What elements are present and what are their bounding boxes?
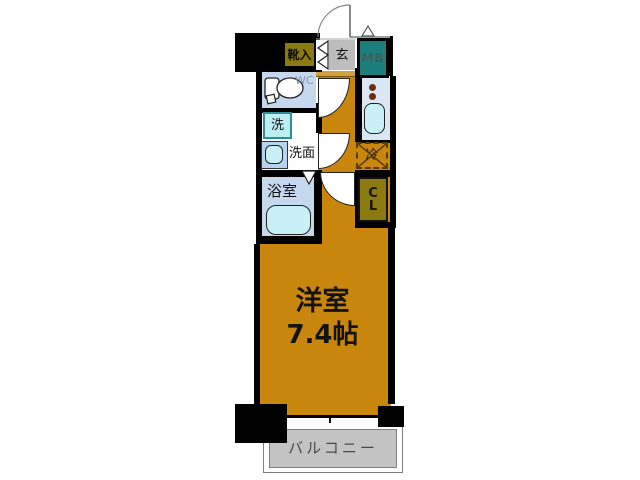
stove-burner-icon xyxy=(369,84,376,91)
x-cross-icon xyxy=(358,144,386,167)
sink-basin-icon xyxy=(265,145,283,164)
main-room-size: 7.4帖 xyxy=(270,322,375,348)
floor-plan: バルコニー 靴入 玄 MB xyxy=(0,0,640,480)
shoe-storage-label: 靴入 xyxy=(287,49,311,61)
wall-left-lower xyxy=(254,244,260,406)
balcony-label: バルコニー xyxy=(288,441,378,456)
wall-block-bottom-right xyxy=(378,406,404,427)
closet-label-c: C xyxy=(368,187,378,200)
meter-box: MB xyxy=(357,38,389,78)
stove-burner-icon xyxy=(369,93,376,100)
folding-door-icon xyxy=(315,40,330,70)
entrance-label: 玄 xyxy=(335,49,348,62)
wall-right-lower xyxy=(388,228,395,404)
main-room-label: 洋室 xyxy=(270,288,375,315)
wall-block-bottom-left xyxy=(235,404,287,443)
balcony: バルコニー xyxy=(269,429,397,468)
closet: C L xyxy=(358,177,388,222)
entrance-genkan: 玄 xyxy=(329,40,355,70)
wall-hall-kitchen xyxy=(355,68,362,142)
wall-right-upper xyxy=(390,76,396,228)
balcony-window-slider-tick xyxy=(329,415,331,423)
bathroom-label: 浴室 xyxy=(267,184,297,199)
balcony-window xyxy=(287,415,378,425)
wall-closet-top xyxy=(355,170,392,177)
washer-box: 洗 xyxy=(263,112,292,139)
shoe-storage: 靴入 xyxy=(283,41,316,68)
kitchen-sink-icon xyxy=(364,103,385,134)
closet-label-l: L xyxy=(369,200,377,213)
bathtub-icon xyxy=(266,205,311,235)
entry-door-swing-icon xyxy=(316,3,356,41)
entrance-step xyxy=(316,70,356,77)
vent-triangle-icon xyxy=(361,25,375,37)
washroom-label: 洗面 xyxy=(289,147,315,160)
refrigerator-space: 冷 xyxy=(356,142,388,169)
washer-label: 洗 xyxy=(271,119,284,132)
wall-closet-bottom xyxy=(355,222,392,228)
bath-door-icon xyxy=(300,170,318,186)
wall-bath-bottom xyxy=(256,236,322,244)
toilet-label: WC xyxy=(295,75,314,86)
meter-box-label: MB xyxy=(361,52,384,64)
